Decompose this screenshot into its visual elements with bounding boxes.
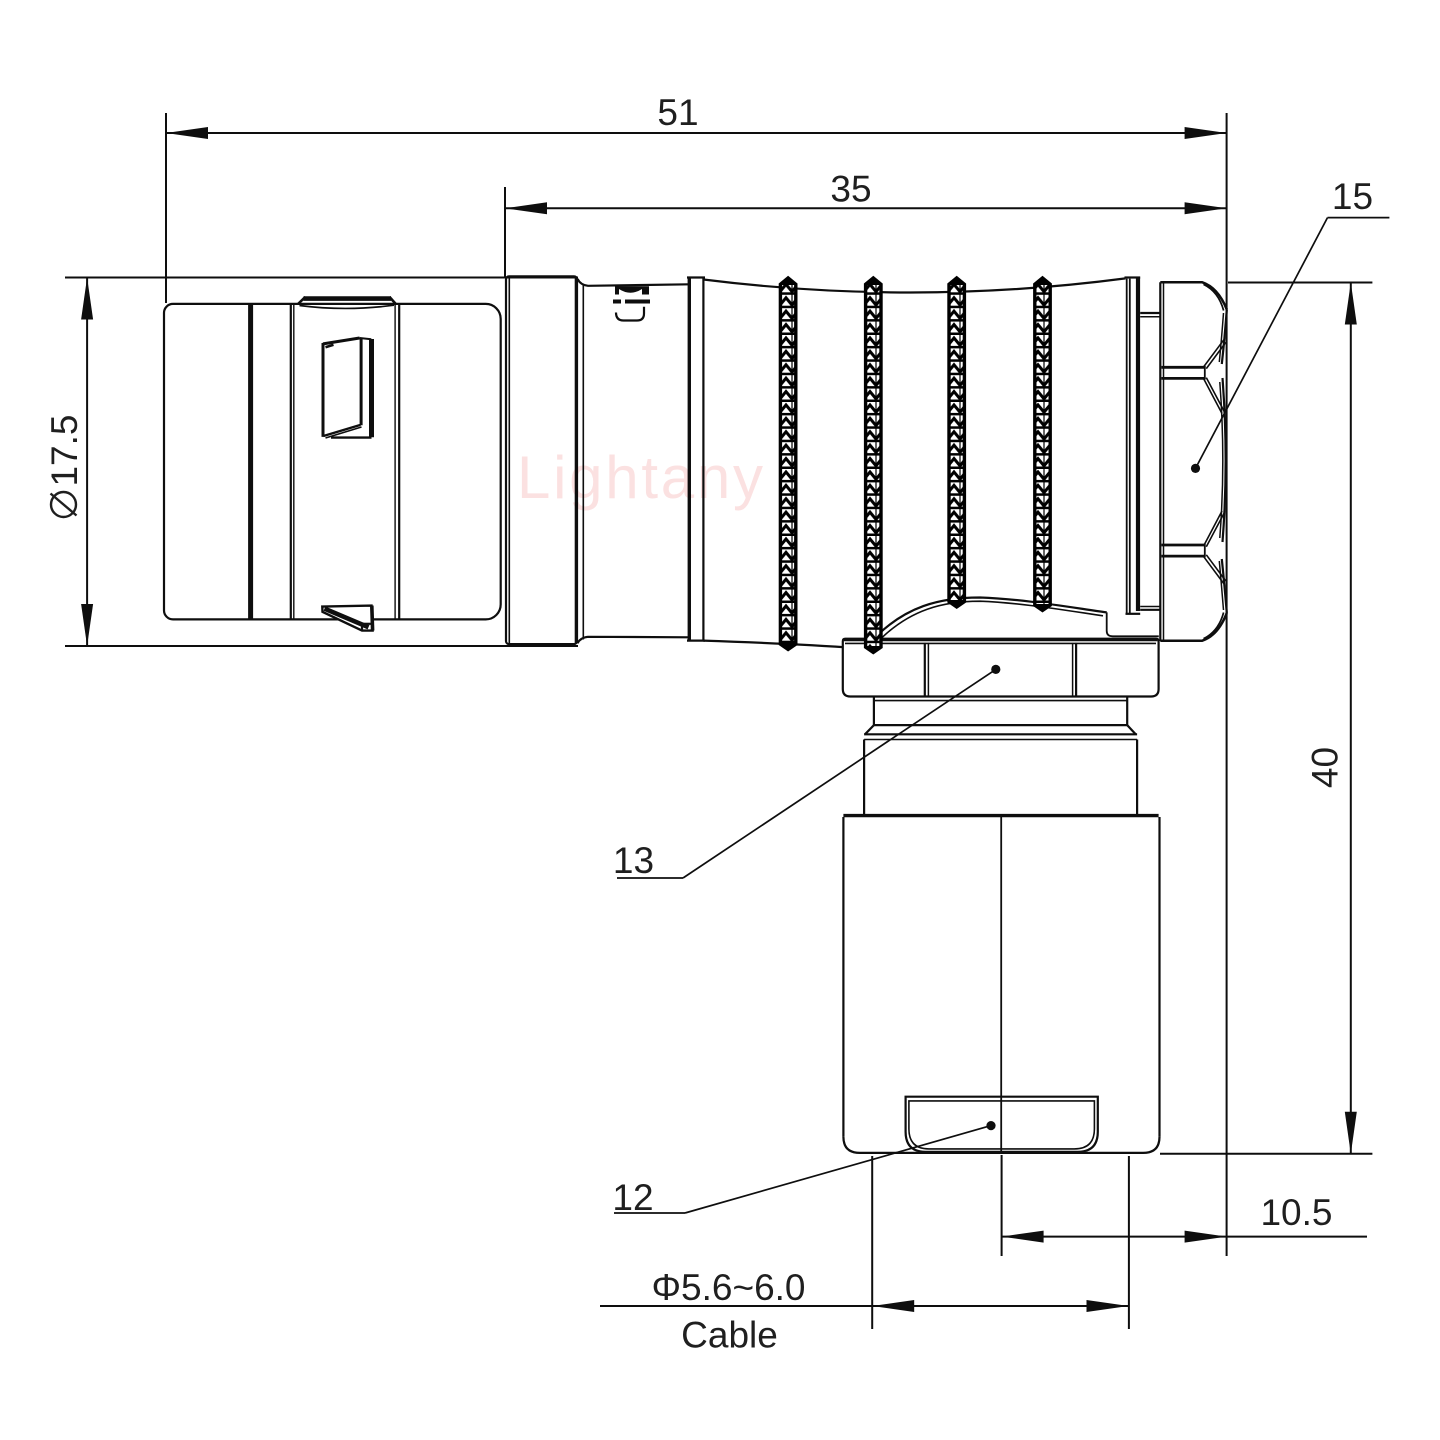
svg-text:Φ5.6~6.0: Φ5.6~6.0 [652,1267,806,1308]
svg-text:13: 13 [613,840,654,881]
svg-text:15: 15 [1332,176,1373,217]
svg-text:Lightany: Lightany [517,444,763,511]
svg-text:51: 51 [657,92,698,133]
svg-text:10.5: 10.5 [1260,1192,1332,1233]
svg-text:35: 35 [830,169,871,210]
svg-text:12: 12 [612,1177,653,1218]
svg-text:17.5: 17.5 [44,414,85,486]
svg-text:40: 40 [1305,747,1346,788]
svg-text:Cable: Cable [681,1315,778,1356]
